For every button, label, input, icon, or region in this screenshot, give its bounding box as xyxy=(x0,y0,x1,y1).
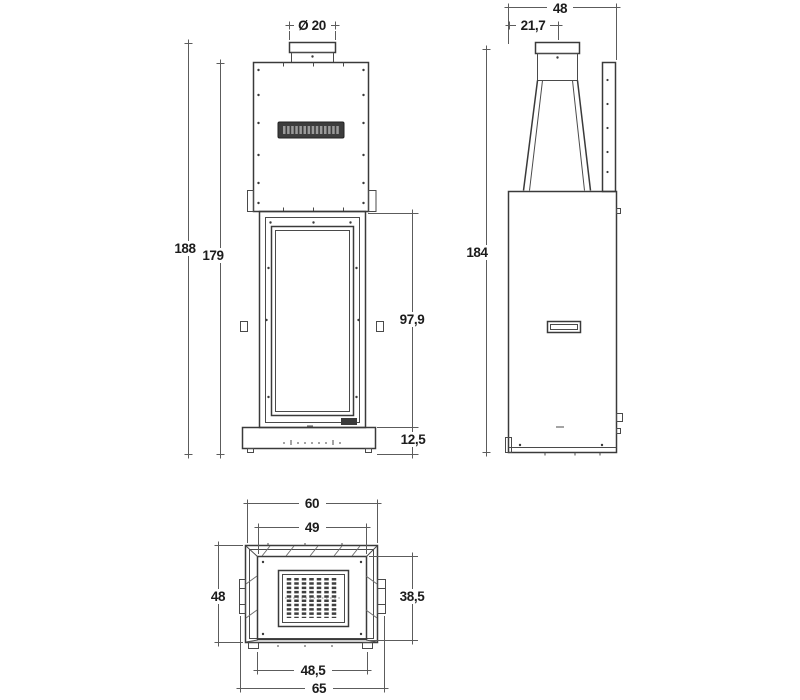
dimension-drawing: Ø 20 188 179 97,9 12,5 xyxy=(0,0,800,700)
dim-firebox-height: 97,9 xyxy=(368,210,430,432)
technical-drawing-page: Ø 20 188 179 97,9 12,5 xyxy=(0,0,800,700)
side-view xyxy=(506,43,623,456)
dim-flue-offset: 21,7 xyxy=(506,18,563,40)
door-latch xyxy=(341,418,357,425)
dim-label-plinth-height: 12,5 xyxy=(401,432,427,447)
corner-miters xyxy=(246,546,377,642)
dim-label-flue-offset: 21,7 xyxy=(521,18,546,33)
front-view xyxy=(241,43,384,453)
side-tabs xyxy=(241,322,384,332)
vent-slots xyxy=(284,440,340,445)
plinth xyxy=(243,428,376,453)
dim-label-outer-depth: 48 xyxy=(211,589,226,604)
dim-plinth-height: 12,5 xyxy=(377,424,430,459)
grate xyxy=(279,571,349,627)
dim-label-depth: 48 xyxy=(553,1,568,16)
dim-outer-depth: 48 xyxy=(204,542,243,647)
dim-label-outer-width: 60 xyxy=(305,496,319,511)
dim-label-flue-diameter: Ø 20 xyxy=(298,18,326,33)
dim-side-height: 184 xyxy=(462,46,493,457)
bottom-view xyxy=(240,543,386,649)
dim-label-body-height: 179 xyxy=(202,248,223,263)
dim-label-firebox-height: 97,9 xyxy=(400,312,425,327)
dim-opening-width: 49 xyxy=(255,520,371,554)
side-flue-collar xyxy=(536,43,580,81)
smoke-funnel xyxy=(524,81,591,191)
dim-label-overall-height: 188 xyxy=(174,241,196,256)
floor-screw-dots xyxy=(262,561,362,635)
side-view-dimensions: 48 21,7 184 xyxy=(462,0,621,457)
dim-label-side-height: 184 xyxy=(466,245,488,260)
dim-label-opening-width: 49 xyxy=(305,520,319,535)
side-wings xyxy=(248,191,377,212)
front-view-dimensions: Ø 20 188 179 97,9 12,5 xyxy=(171,17,430,459)
dim-label-overall-width: 65 xyxy=(312,681,327,696)
dim-label-base-width: 48,5 xyxy=(301,663,327,678)
back-panel xyxy=(603,63,616,192)
handle-slot xyxy=(548,322,581,333)
dim-body-height: 179 xyxy=(199,60,227,459)
dim-label-opening-depth: 38,5 xyxy=(400,589,426,604)
dim-base-width: 48,5 xyxy=(254,652,372,679)
door-screw-dots xyxy=(265,221,359,398)
flue-collar xyxy=(290,43,336,63)
brand-plate xyxy=(278,122,344,138)
door xyxy=(260,212,366,428)
bottom-feet xyxy=(249,643,373,649)
dim-flue-diameter: Ø 20 xyxy=(286,17,340,40)
dim-overall-height: 188 xyxy=(171,40,199,459)
dim-overall-width: 65 xyxy=(237,616,389,696)
bracket-right xyxy=(378,580,386,614)
rear-tabs xyxy=(617,209,623,434)
side-base-details xyxy=(506,427,604,456)
bracket-left xyxy=(240,580,246,614)
